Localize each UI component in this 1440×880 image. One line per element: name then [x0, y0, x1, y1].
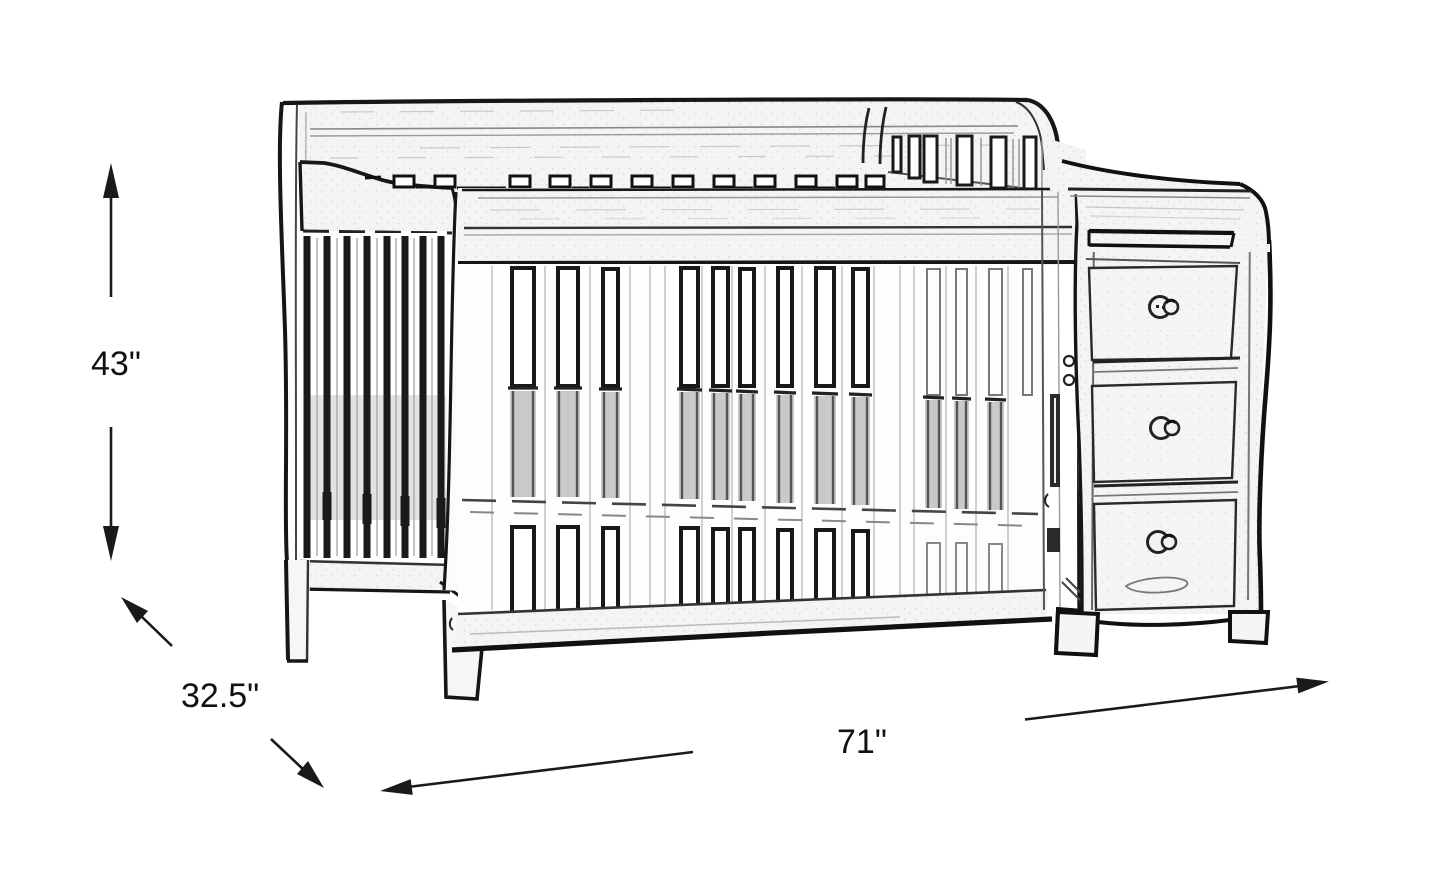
svg-text:43": 43" [91, 345, 141, 383]
svg-text:71": 71" [837, 723, 887, 761]
svg-text:32.5": 32.5" [181, 677, 259, 715]
